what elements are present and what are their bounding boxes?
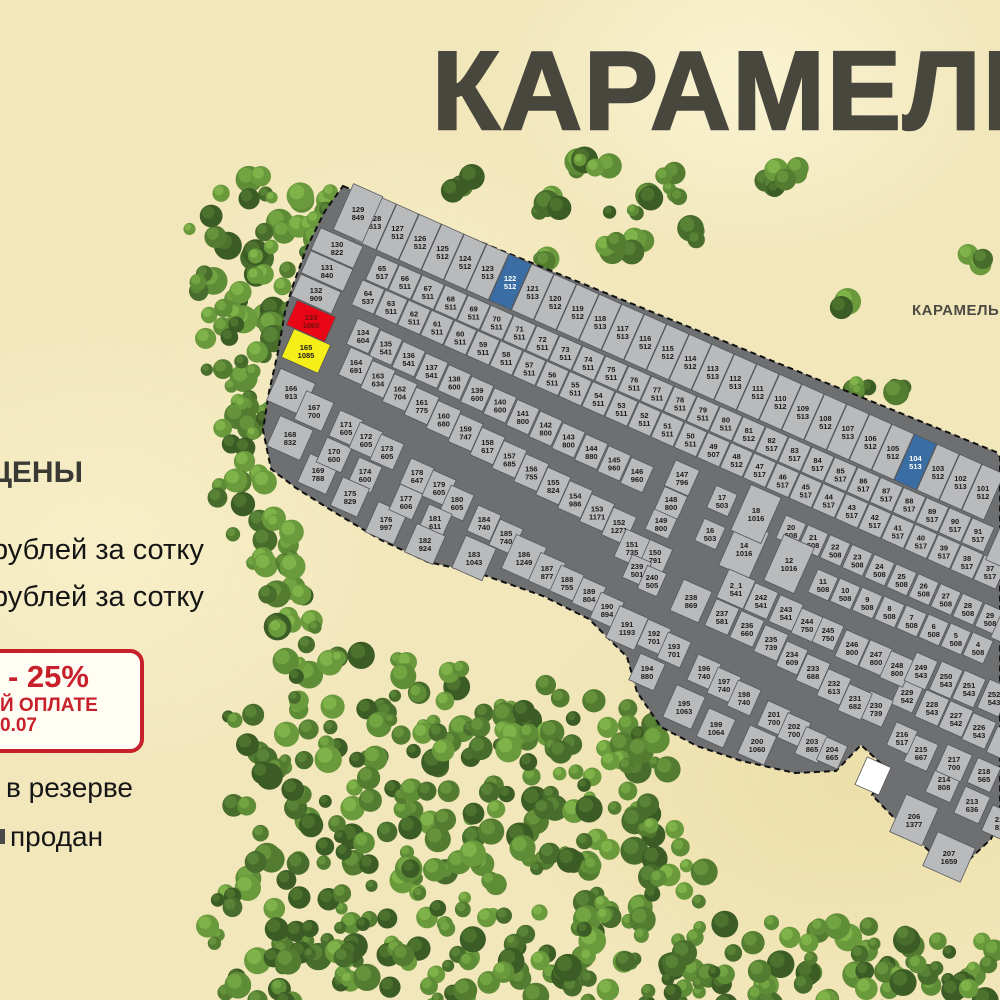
svg-text:740: 740 [718,685,731,694]
svg-text:517: 517 [972,535,985,544]
svg-text:804: 804 [583,595,596,604]
svg-text:508: 508 [817,585,830,594]
svg-text:700: 700 [788,730,801,739]
svg-text:739: 739 [870,709,883,718]
svg-text:829: 829 [344,497,357,506]
svg-text:565: 565 [978,775,991,784]
svg-text:501: 501 [631,570,644,579]
svg-text:840: 840 [321,271,334,280]
svg-text:1659: 1659 [941,857,958,866]
svg-text:505: 505 [646,581,659,590]
svg-text:1064: 1064 [708,728,726,737]
svg-text:796: 796 [676,478,689,487]
svg-text:581: 581 [716,617,729,626]
svg-text:512: 512 [864,442,877,451]
page-title: КАРАМЕЛЬ [432,36,1000,147]
svg-text:508: 508 [984,619,997,628]
svg-text:517: 517 [892,531,905,540]
svg-text:613: 613 [828,687,841,696]
svg-text:542: 542 [901,696,914,705]
svg-text:511: 511 [468,312,480,321]
svg-text:517: 517 [869,521,882,530]
svg-text:913: 913 [285,392,298,401]
svg-text:503: 503 [704,534,717,543]
svg-text:865: 865 [806,745,819,754]
karamel-2-label: КАРАМЕЛЬ 2 [912,302,1000,319]
svg-text:517: 517 [903,505,916,514]
prices-heading: ЦЕНЫ [0,456,83,490]
status-sold-label: продан [10,821,103,853]
svg-text:747: 747 [459,433,472,442]
svg-text:517: 517 [857,484,870,493]
svg-text:739: 739 [765,643,778,652]
svg-text:511: 511 [500,358,512,367]
svg-text:541: 541 [380,348,393,357]
svg-text:1193: 1193 [619,628,635,637]
svg-text:800: 800 [539,429,552,438]
svg-text:877: 877 [541,572,554,581]
svg-text:513: 513 [526,292,539,301]
svg-text:636: 636 [966,805,979,814]
svg-text:517: 517 [961,562,974,571]
svg-text:600: 600 [328,455,341,464]
svg-text:609: 609 [786,658,799,667]
svg-text:704: 704 [394,393,407,402]
svg-text:600: 600 [359,475,372,484]
svg-text:513: 513 [481,272,494,281]
promo-payment: Й ОПЛАТЕ [0,695,98,717]
svg-text:511: 511 [559,353,571,362]
svg-text:543: 543 [915,671,928,680]
svg-text:543: 543 [940,680,953,689]
svg-text:682: 682 [849,702,862,711]
status-reserved-label: в резерве [6,772,133,804]
svg-text:517: 517 [376,272,389,281]
svg-text:800: 800 [562,440,575,449]
svg-text:513: 513 [616,332,629,341]
svg-text:755: 755 [525,473,538,482]
svg-text:517: 517 [984,572,997,581]
svg-text:517: 517 [938,552,951,561]
svg-text:511: 511 [628,383,640,392]
svg-text:511: 511 [569,389,581,398]
svg-text:605: 605 [340,428,353,437]
svg-text:1016: 1016 [736,549,753,558]
svg-text:832: 832 [284,438,297,447]
svg-text:1043: 1043 [466,558,483,567]
svg-text:600: 600 [448,382,461,391]
svg-text:800: 800 [846,648,859,657]
svg-text:508: 508 [972,648,985,657]
svg-text:960: 960 [608,463,621,472]
svg-text:511: 511 [431,328,443,337]
svg-text:511: 511 [661,429,673,438]
svg-text:701: 701 [668,650,681,659]
price-line-1: рублей за сотку [0,534,204,567]
svg-text:800: 800 [655,524,668,533]
svg-text:680: 680 [437,419,450,428]
svg-text:700: 700 [308,411,321,420]
svg-text:512: 512 [730,460,743,469]
svg-text:508: 508 [940,599,953,608]
svg-text:511: 511 [445,302,457,311]
svg-text:507: 507 [707,450,720,459]
svg-text:512: 512 [752,392,765,401]
svg-text:775: 775 [415,406,428,415]
svg-text:986: 986 [569,499,582,508]
svg-text:880: 880 [641,672,654,681]
svg-text:700: 700 [948,763,961,772]
svg-text:517: 517 [880,495,893,504]
svg-text:997: 997 [380,523,393,532]
svg-text:605: 605 [381,452,394,461]
svg-text:512: 512 [549,302,562,311]
svg-text:1171: 1171 [589,513,605,522]
svg-text:750: 750 [822,634,835,643]
svg-text:1060: 1060 [749,745,766,754]
svg-text:511: 511 [605,373,617,382]
svg-text:508: 508 [883,612,896,621]
svg-text:512: 512 [459,262,472,271]
svg-text:606: 606 [400,502,413,511]
svg-text:511: 511 [674,404,686,413]
svg-text:508: 508 [829,551,842,560]
svg-text:665: 665 [826,753,839,762]
svg-text:517: 517 [776,480,789,489]
svg-text:512: 512 [639,342,652,351]
svg-text:517: 517 [915,541,928,550]
svg-text:543: 543 [988,698,1000,707]
svg-text:512: 512 [819,422,832,431]
svg-text:517: 517 [846,511,859,520]
svg-text:511: 511 [399,282,411,291]
svg-text:511: 511 [454,338,466,347]
svg-text:541: 541 [402,359,415,368]
svg-text:513: 513 [842,432,855,441]
svg-text:685: 685 [503,459,516,468]
svg-text:1377: 1377 [906,820,923,829]
svg-text:543: 543 [926,708,939,717]
svg-text:508: 508 [927,630,940,639]
svg-text:513: 513 [594,322,607,331]
svg-text:1016: 1016 [781,564,798,573]
price-line-2: рублей за сотку [0,581,204,614]
svg-text:508: 508 [905,621,918,630]
svg-text:511: 511 [422,292,434,301]
promo-box: - 25% Й ОПЛАТЕ 0.07 [0,649,144,753]
svg-text:517: 517 [811,464,824,473]
svg-text:511: 511 [546,378,558,387]
svg-text:604: 604 [357,336,370,345]
svg-text:512: 512 [977,492,990,501]
svg-text:617: 617 [481,446,494,455]
svg-text:800: 800 [891,669,904,678]
svg-text:511: 511 [697,414,709,423]
svg-text:880: 880 [585,452,598,461]
svg-text:511: 511 [408,317,420,326]
svg-text:1060: 1060 [303,321,320,330]
svg-text:517: 517 [822,501,835,510]
svg-text:512: 512 [684,362,697,371]
svg-text:512: 512 [504,282,517,291]
svg-text:512: 512 [436,252,449,261]
svg-text:508: 508 [839,594,852,603]
svg-text:1063: 1063 [676,707,693,716]
svg-text:894: 894 [601,610,614,619]
svg-text:605: 605 [451,503,464,512]
svg-text:543: 543 [973,731,986,740]
svg-text:508: 508 [962,609,975,618]
svg-text:81: 81 [995,823,1000,832]
svg-text:513: 513 [729,382,742,391]
svg-text:605: 605 [433,488,446,497]
svg-text:740: 740 [500,537,513,546]
svg-text:517: 517 [799,491,812,500]
svg-text:1249: 1249 [516,558,533,567]
svg-text:508: 508 [861,603,874,612]
svg-text:647: 647 [411,476,424,485]
svg-text:508: 508 [917,590,930,599]
svg-text:700: 700 [768,718,781,727]
svg-text:605: 605 [360,440,373,449]
svg-text:822: 822 [331,248,344,257]
svg-text:513: 513 [909,462,922,471]
svg-text:800: 800 [517,417,530,426]
svg-text:800: 800 [665,503,678,512]
svg-text:543: 543 [963,689,976,698]
svg-text:517: 517 [949,525,962,534]
svg-text:869: 869 [685,601,698,610]
svg-text:508: 508 [873,570,886,579]
svg-text:508: 508 [851,560,864,569]
svg-text:824: 824 [547,486,560,495]
svg-text:542: 542 [950,719,963,728]
svg-text:513: 513 [797,412,810,421]
svg-text:808: 808 [938,783,951,792]
svg-text:909: 909 [310,294,323,303]
svg-text:750: 750 [801,625,814,634]
svg-text:511: 511 [536,343,548,352]
svg-text:511: 511 [592,399,604,408]
svg-text:667: 667 [915,753,928,762]
svg-text:755: 755 [561,583,574,592]
svg-text:541: 541 [755,601,768,610]
svg-text:511: 511 [638,419,650,428]
svg-text:511: 511 [491,323,503,332]
cropped-legend-mark [0,829,5,844]
svg-text:517: 517 [753,470,766,479]
svg-text:541: 541 [425,371,438,380]
svg-text:688: 688 [807,672,820,681]
svg-text:788: 788 [312,474,325,483]
svg-text:511: 511 [477,348,489,357]
svg-text:701: 701 [648,637,661,646]
svg-text:512: 512 [414,242,427,251]
svg-text:512: 512 [661,352,674,361]
svg-text:511: 511 [385,307,397,316]
svg-text:600: 600 [494,406,507,415]
svg-text:600: 600 [471,394,484,403]
svg-text:517: 517 [926,515,939,524]
svg-text:517: 517 [765,444,778,453]
svg-text:517: 517 [834,474,847,483]
svg-text:512: 512 [932,472,945,481]
svg-text:512: 512 [743,434,756,443]
svg-text:511: 511 [651,393,663,402]
svg-text:512: 512 [391,232,404,241]
svg-text:924: 924 [419,544,432,553]
svg-text:740: 740 [698,672,711,681]
promo-discount: - 25% [8,659,89,695]
svg-text:537: 537 [362,297,375,306]
svg-text:511: 511 [684,440,696,449]
svg-text:1016: 1016 [748,514,765,523]
svg-text:512: 512 [571,312,584,321]
svg-text:511: 511 [582,363,594,372]
svg-text:508: 508 [950,639,963,648]
svg-text:512: 512 [887,452,900,461]
svg-text:513: 513 [954,482,967,491]
svg-text:517: 517 [788,454,801,463]
svg-text:660: 660 [741,629,754,638]
svg-text:800: 800 [870,658,883,667]
svg-text:511: 511 [513,333,525,342]
svg-text:740: 740 [478,523,491,532]
svg-text:511: 511 [615,409,627,418]
svg-text:541: 541 [730,589,743,598]
svg-text:517: 517 [896,738,909,747]
svg-text:1085: 1085 [298,351,315,360]
svg-text:503: 503 [716,501,729,510]
svg-text:634: 634 [372,379,385,388]
svg-text:512: 512 [774,402,787,411]
svg-text:508: 508 [895,580,908,589]
svg-text:511: 511 [523,368,535,377]
svg-text:511: 511 [720,424,732,433]
svg-text:691: 691 [350,366,363,375]
svg-text:960: 960 [631,475,644,484]
svg-text:541: 541 [780,613,793,622]
svg-text:513: 513 [707,372,720,381]
promo-date: 0.07 [0,715,37,737]
svg-text:740: 740 [738,698,751,707]
svg-text:849: 849 [352,213,365,222]
